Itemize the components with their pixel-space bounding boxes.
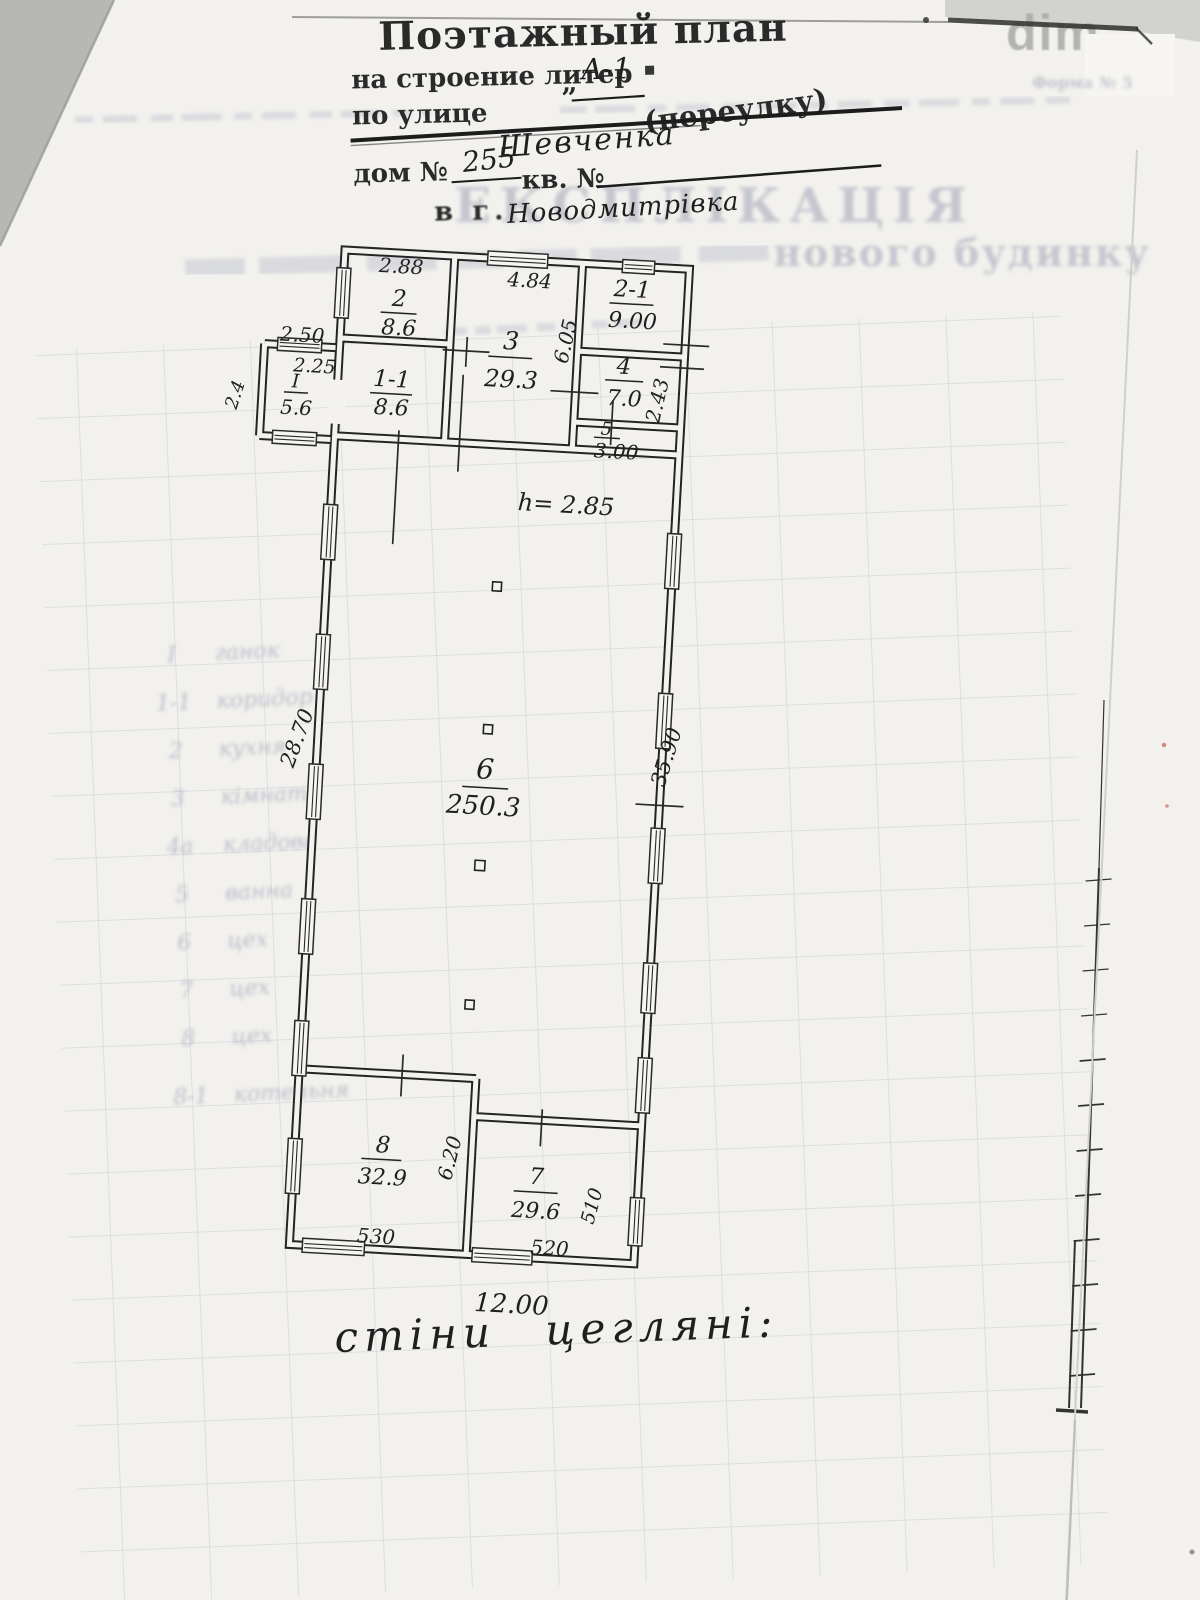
window-icon	[641, 963, 658, 1014]
ghost-row-number: 1-1	[156, 690, 192, 717]
room-number: 2	[390, 286, 407, 313]
window-icon	[321, 504, 338, 560]
dim-porch-width: 2.50	[278, 321, 325, 348]
room-area: 5.6	[280, 395, 313, 421]
apt-label: кв. №	[521, 164, 605, 196]
room-number: 6	[475, 752, 495, 786]
window-icon	[299, 899, 316, 955]
ghost-row-label: цех	[227, 927, 269, 954]
room-area: 3.00	[593, 438, 639, 464]
city-label: в г.	[434, 195, 509, 228]
window-icon	[635, 1058, 652, 1114]
ghost-row-number: 5	[175, 882, 190, 908]
building-value: А-1	[579, 51, 632, 86]
room-area: 9.00	[607, 308, 657, 336]
window-icon	[313, 634, 330, 690]
quote-open: „	[561, 65, 578, 98]
ghost-row-label: цех	[229, 975, 271, 1002]
house-label: дом №	[353, 157, 448, 189]
window-icon	[285, 1138, 302, 1194]
ghost-row-label: ганок	[214, 638, 281, 666]
door-opening-porch	[326, 379, 346, 424]
ghost-row-label: котельня	[233, 1078, 349, 1108]
stamp-blob	[645, 66, 654, 75]
window-icon	[306, 764, 323, 820]
street-label: по улице	[352, 98, 488, 131]
window-icon	[334, 268, 351, 319]
dim-room8-width: 530	[356, 1223, 396, 1249]
window-icon	[648, 828, 665, 884]
room-area: 32.9	[357, 1164, 407, 1192]
room-area: 29.6	[509, 1198, 560, 1226]
window-icon	[622, 260, 655, 275]
ghost-row-number: 6	[177, 930, 192, 956]
room-area: 8.6	[373, 395, 409, 422]
room-number: 1-1	[373, 366, 411, 394]
ghost-form-note: Форма № 5	[1032, 73, 1133, 92]
dim-room7-width: 520	[530, 1235, 570, 1261]
ghost-row-label: кладова	[223, 829, 317, 858]
ghost-row-number: 3	[170, 787, 185, 813]
room-area: 7.0	[606, 386, 642, 413]
house-value: 255	[460, 140, 518, 179]
room-area: 8.6	[381, 315, 417, 342]
room-area: 250.3	[444, 789, 521, 823]
room-number: 3	[502, 326, 520, 356]
scanned-floor-plan-page: dim Форма № 5 ЕКСПЛІКАЦІЯ нового будинку…	[0, 0, 1200, 1600]
window-icon	[292, 1020, 309, 1076]
room-number: 4	[615, 353, 632, 380]
ghost-row-number: 8-1	[173, 1084, 209, 1111]
room-number: 7	[529, 1164, 545, 1191]
scan-canvas: dim Форма № 5 ЕКСПЛІКАЦІЯ нового будинку…	[0, 0, 1200, 1600]
ceiling-height-note: h= 2.85	[517, 488, 615, 521]
ghost-row-number: 2	[167, 739, 183, 765]
ghost-explication-tail: нового будинку	[773, 230, 1151, 275]
ghost-row-label: цех	[231, 1023, 273, 1050]
room-number: 8	[375, 1132, 391, 1159]
ghost-row-number: 4а	[165, 834, 194, 860]
window-icon	[665, 533, 682, 589]
dim-room2-width: 2.88	[377, 253, 424, 280]
room-area: 29.3	[483, 364, 539, 395]
ghost-row-label: ванна	[225, 878, 294, 906]
window-icon	[628, 1197, 645, 1246]
dim-room3-width: 4.84	[506, 267, 553, 294]
window-icon	[272, 430, 317, 445]
dim-porch-inner: 2.25	[292, 354, 336, 378]
ghost-row-number: 7	[179, 978, 194, 1004]
room-number: 2-1	[612, 276, 651, 304]
ghost-row-number: 8	[181, 1026, 196, 1052]
